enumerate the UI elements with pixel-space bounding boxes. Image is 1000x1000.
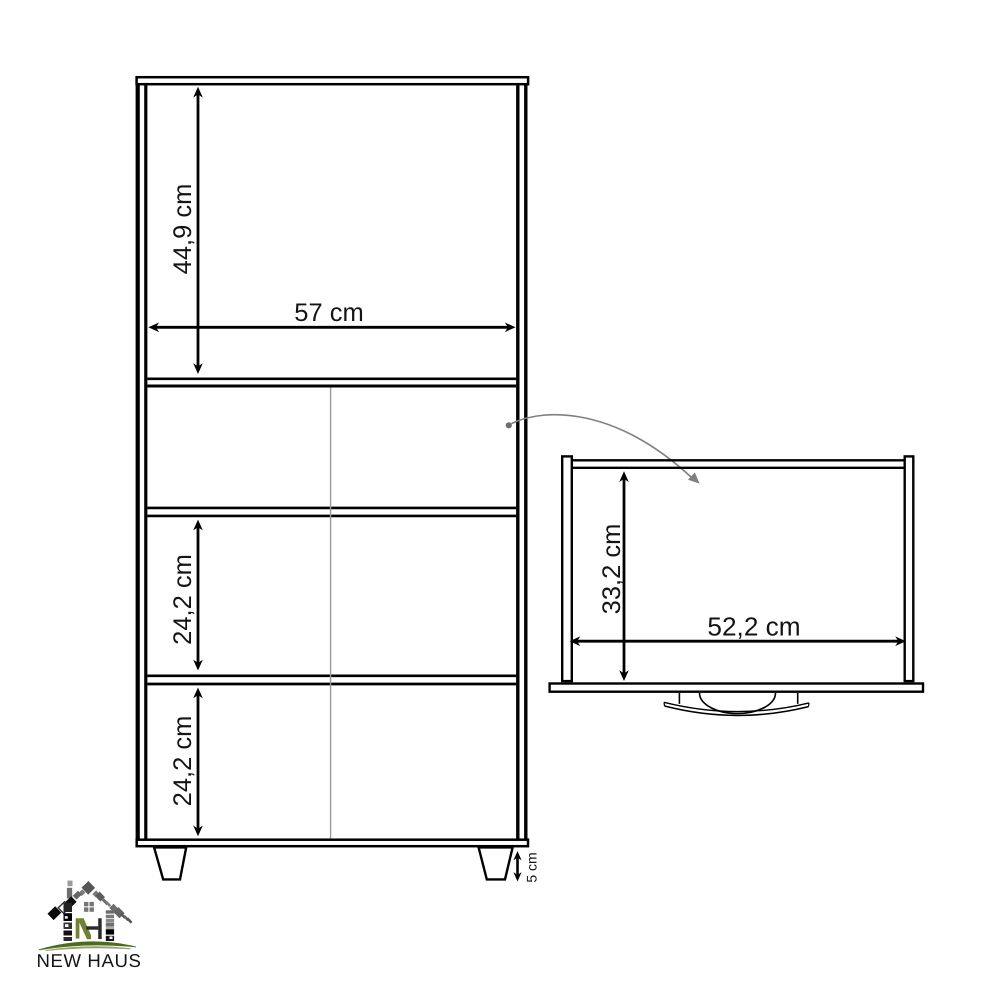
svg-text:5 cm: 5 cm <box>524 852 540 882</box>
svg-text:33,2 cm: 33,2 cm <box>598 524 626 615</box>
svg-text:57 cm: 57 cm <box>294 299 363 327</box>
svg-text:24,2 cm: 24,2 cm <box>169 716 197 807</box>
svg-text:24,2 cm: 24,2 cm <box>169 554 197 645</box>
svg-text:52,2 cm: 52,2 cm <box>707 612 800 642</box>
svg-text:44,9 cm: 44,9 cm <box>169 184 197 275</box>
svg-text:NEW HAUS: NEW HAUS <box>36 950 141 971</box>
